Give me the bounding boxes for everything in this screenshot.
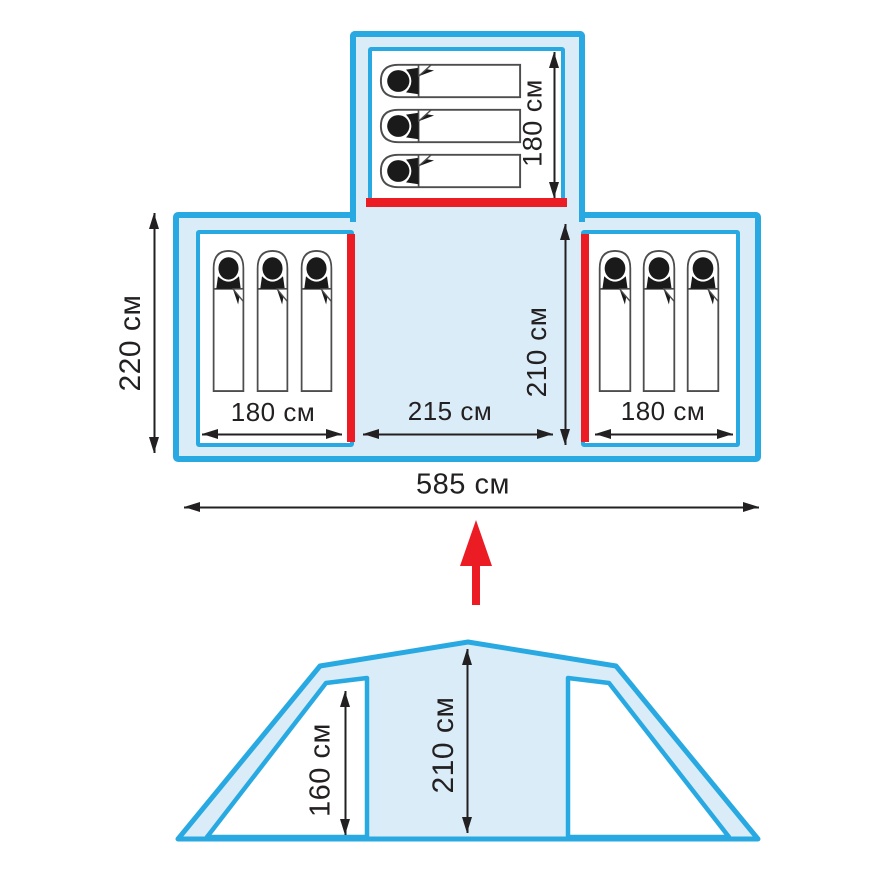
tent-dimensions-diagram: 180 см 215 см 180 см 585 см 220 см 210 с… <box>0 0 875 875</box>
label-center-width: 215 см <box>408 398 492 424</box>
label-outer-depth: 220 см <box>116 294 146 391</box>
sleeping-bag-icon <box>378 152 523 190</box>
sleeping-bag-icon <box>211 248 246 394</box>
dim-arrow-outer-depth <box>149 213 160 453</box>
sleeping-bag-icon <box>299 248 334 394</box>
sleeping-bag-icon <box>378 62 523 100</box>
label-center-depth: 210 см <box>523 307 551 398</box>
entrance-marker-left <box>347 234 355 442</box>
label-right-room-width: 180 см <box>621 398 705 424</box>
label-total-width: 585 см <box>416 471 510 500</box>
entrance-marker-top <box>366 198 567 207</box>
dim-arrow-right-room-width <box>595 429 733 440</box>
sleeping-bag-icon <box>378 107 523 145</box>
up-arrow-icon <box>459 520 493 605</box>
entrance-marker-right <box>581 234 589 442</box>
dim-arrow-total-width <box>184 502 759 513</box>
sleeping-bag-icon <box>597 248 633 394</box>
label-center-height: 210 см <box>429 696 459 793</box>
label-top-room-length: 180 см <box>520 79 547 167</box>
dim-arrow-center-depth <box>560 224 571 445</box>
dim-arrow-center-width <box>363 429 553 440</box>
dim-arrow-center-height <box>462 649 473 833</box>
sleeping-bag-icon <box>255 248 290 394</box>
dim-arrow-side-height <box>340 691 351 835</box>
label-side-height: 160 см <box>307 723 336 817</box>
label-left-room-width: 180 см <box>231 399 315 425</box>
dim-arrow-top-room-length <box>549 52 560 198</box>
sleeping-bag-icon <box>685 248 721 394</box>
sleeping-bag-icon <box>641 248 677 394</box>
dim-arrow-left-room-width <box>202 429 342 440</box>
